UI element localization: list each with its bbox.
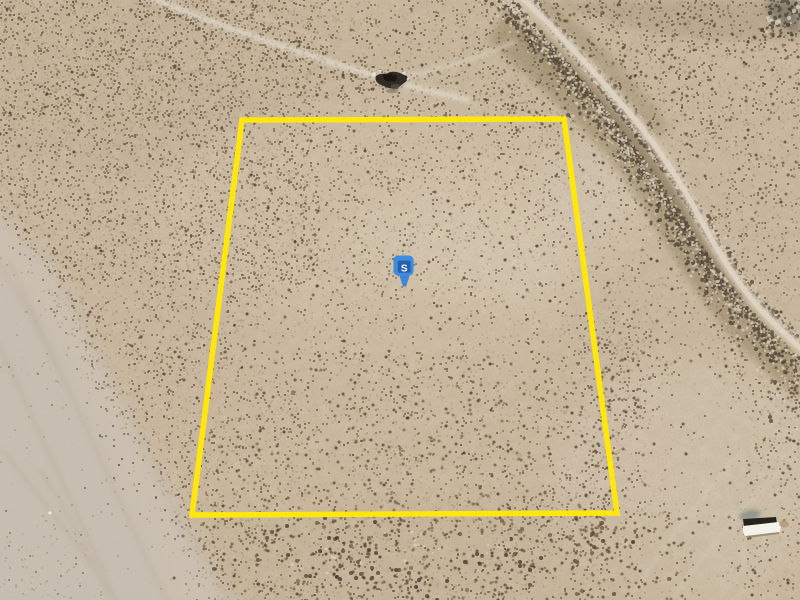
svg-text:S: S: [401, 264, 408, 275]
